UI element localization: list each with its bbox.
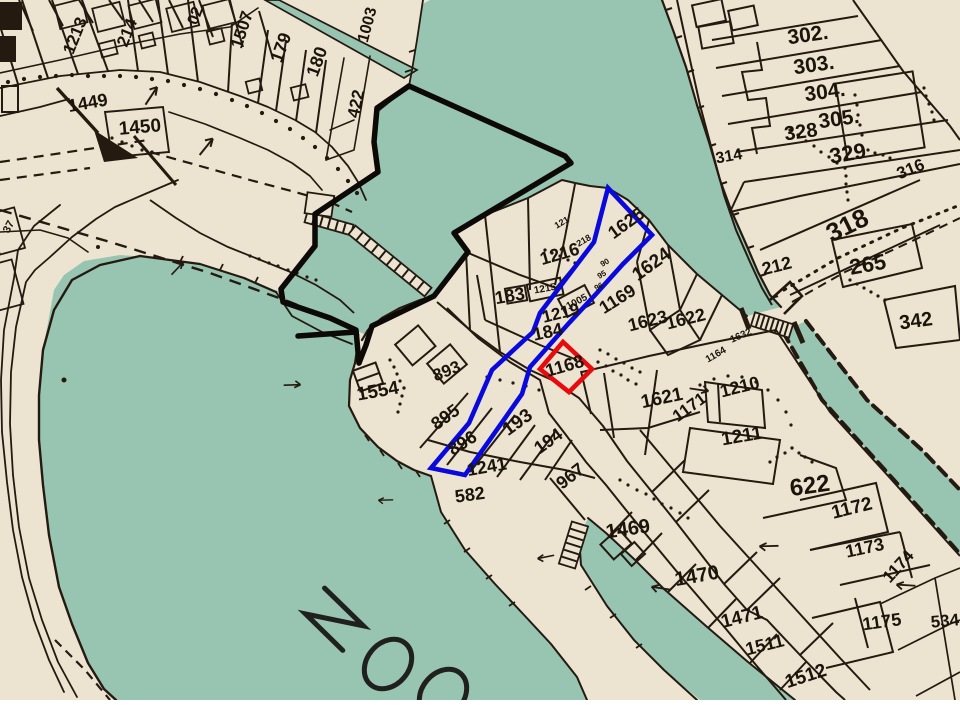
svg-text:582: 582: [454, 483, 487, 507]
svg-text:342: 342: [898, 308, 934, 334]
svg-text:622: 622: [788, 470, 831, 502]
svg-text:1450: 1450: [118, 115, 162, 140]
svg-text:534: 534: [930, 610, 960, 631]
svg-text:328: 328: [783, 119, 819, 145]
